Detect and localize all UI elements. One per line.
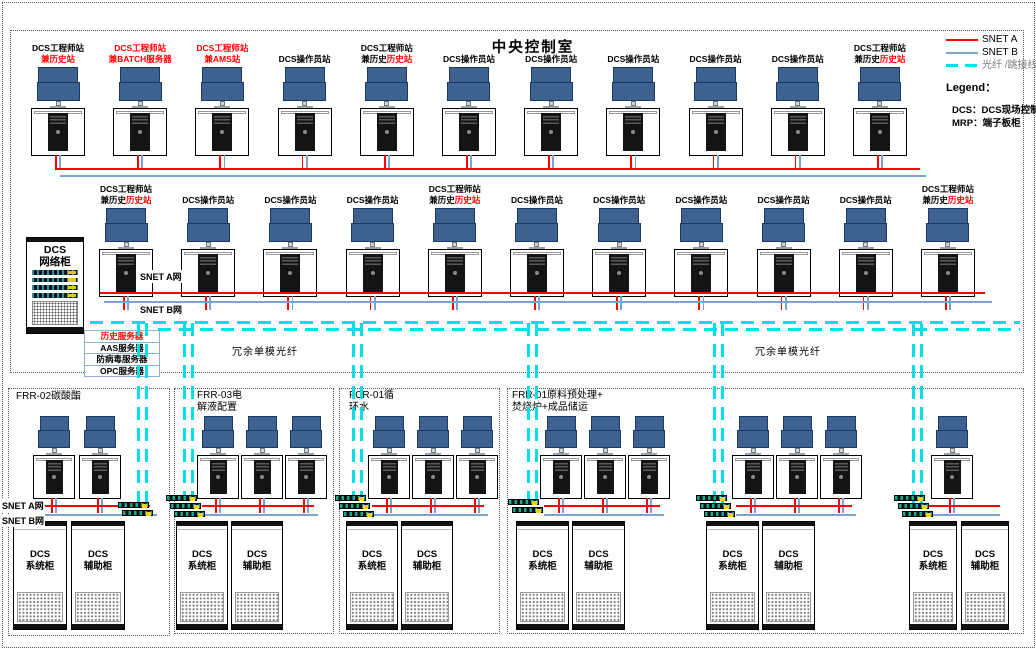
monitor-icon xyxy=(598,208,641,249)
fiber-drop xyxy=(920,323,923,504)
dcs-cabinet: DCS系统柜 xyxy=(706,521,759,630)
tower-front xyxy=(541,113,561,151)
vent-grille xyxy=(405,592,449,622)
monitor-panel xyxy=(515,223,558,242)
computer-tower-icon xyxy=(428,249,482,297)
field-workstation xyxy=(78,416,122,513)
station-label: DCS操作员站 xyxy=(772,41,824,65)
tower-front xyxy=(280,254,300,292)
box-frr01-title: FRR-01原料预处理+焚烧炉+成品储运 xyxy=(512,390,603,414)
frr01-cluster1-workstations xyxy=(539,416,671,513)
station-label-line1: DCS操作员站 xyxy=(593,195,645,206)
cable-pair xyxy=(286,296,294,310)
computer-tower-icon xyxy=(181,249,235,297)
station-label-line1: DCS工程师站 xyxy=(361,43,413,54)
computer-tower-icon xyxy=(31,108,85,156)
frr01-cluster3-cabinets: DCS系统柜DCS辅助柜 xyxy=(909,521,1009,630)
monitor-icon xyxy=(515,208,558,249)
workstation: DCS操作员站 xyxy=(168,182,248,310)
tower-front xyxy=(295,113,315,151)
monitor-panel xyxy=(248,416,277,431)
monitor-icon xyxy=(201,67,244,108)
rack-switch-icon xyxy=(32,293,78,298)
station-label: DCS操作员站 xyxy=(758,182,810,206)
legend-fiber-label: 光纤 /跳接线 xyxy=(982,59,1036,72)
computer-tower-icon xyxy=(33,455,75,499)
dcs-cabinet: DCS系统柜 xyxy=(13,521,67,630)
monitor-panel xyxy=(204,416,233,431)
dcs-cabinet: DCS系统柜 xyxy=(176,521,228,630)
fiber-drop xyxy=(352,323,355,497)
station-label: DCS工程师站兼历史历史站 xyxy=(361,41,413,65)
monitor-icon xyxy=(365,67,408,108)
computer-tower-icon xyxy=(592,249,646,297)
monitor-panel xyxy=(635,416,664,431)
rack-switch-icon xyxy=(32,285,78,290)
switch-stack xyxy=(335,493,374,517)
tower-front xyxy=(198,254,218,292)
cabinet-base xyxy=(27,327,83,333)
monitor-panel xyxy=(926,223,969,242)
field-workstation xyxy=(411,416,455,513)
field-snet-b-label: SNET B网 xyxy=(1,514,45,527)
station-label-line2: 兼历史历史站 xyxy=(361,54,413,65)
tower-front xyxy=(377,113,397,151)
field-workstation xyxy=(819,416,863,513)
workstation: DCS操作员站 xyxy=(593,41,673,169)
monitor-icon xyxy=(545,416,577,455)
monitor-panel xyxy=(681,208,721,224)
monitor-panel xyxy=(353,208,393,224)
monitor-panel xyxy=(270,208,310,224)
network-switch-icon xyxy=(512,507,543,513)
workstation: DCS操作员站 xyxy=(265,41,345,169)
station-label: DCS操作员站 xyxy=(840,182,892,206)
station-label-line1: DCS工程师站 xyxy=(109,43,172,54)
workstation: DCS操作员站 xyxy=(661,182,741,310)
frr03-snet-b-bus xyxy=(202,514,318,516)
server-list-item: 防病毒服务器 xyxy=(85,353,159,365)
computer-tower-icon xyxy=(368,455,410,499)
legend-snet-b: SNET B xyxy=(946,46,1034,59)
station-label-line2: 兼历史历史站 xyxy=(922,195,974,206)
legend-dcs-definition: DCS：DCS现场控制 xyxy=(952,104,1034,117)
station-label-line1: DCS工程师站 xyxy=(854,43,906,54)
cable-pair xyxy=(780,296,788,310)
vent-grille xyxy=(913,592,953,622)
station-label-line1: DCS工程师站 xyxy=(429,184,481,195)
server-list-item: AAS服务器 xyxy=(85,342,159,354)
network-switch-icon xyxy=(704,511,735,517)
monitor-panel xyxy=(449,67,489,83)
station-label-line2: 兼历史历史站 xyxy=(429,195,481,206)
monitor-panel xyxy=(844,223,887,242)
monitor-panel xyxy=(633,430,665,448)
monitor-panel xyxy=(202,67,242,83)
legend-snet-b-label: SNET B xyxy=(982,46,1018,59)
vent-grille xyxy=(576,592,621,622)
computer-tower-icon xyxy=(820,455,862,499)
cabinet-base xyxy=(14,624,66,629)
snet-a-net-label: SNET A网 xyxy=(139,270,183,283)
monitor-panel xyxy=(202,430,234,448)
station-label-line1: DCS操作员站 xyxy=(443,54,495,65)
station-label-line1: DCS操作员站 xyxy=(690,54,742,65)
fiber-bus-line1 xyxy=(90,321,1020,324)
cabinet-base xyxy=(402,624,452,629)
computer-tower-icon xyxy=(689,108,743,156)
field-workstation xyxy=(583,416,627,513)
monitor-panel xyxy=(589,430,621,448)
legend-fiber: 光纤 /跳接线 xyxy=(946,59,1034,72)
dcs-cabinet: DCS系统柜 xyxy=(516,521,569,630)
station-label-line1: DCS操作员站 xyxy=(840,195,892,206)
cabinet-top-bar xyxy=(573,522,624,526)
snet-b-net-label: SNET B网 xyxy=(139,303,183,316)
monitor-panel xyxy=(737,430,769,448)
monitor-panel xyxy=(531,67,571,83)
station-label: DCS操作员站 xyxy=(593,182,645,206)
monitor-panel xyxy=(463,416,492,431)
monitor-icon xyxy=(781,416,813,455)
vent-grille xyxy=(710,592,755,622)
cabinet-label: DCS辅助柜 xyxy=(402,530,452,592)
legend: SNET A SNET B 光纤 /跳接线 Legend： DCS：DCS现场控… xyxy=(946,33,1034,130)
tower-front xyxy=(833,460,850,494)
rack-switch-icon xyxy=(32,270,78,275)
monitor-panel xyxy=(938,416,967,431)
monitor-icon xyxy=(37,67,80,108)
frr01-c2-snet-a-bus xyxy=(736,505,852,507)
cable-pair xyxy=(369,296,377,310)
frr01-cluster2-workstations xyxy=(731,416,863,513)
frr03-cabinets: DCS系统柜DCS辅助柜 xyxy=(176,521,283,630)
monitor-icon xyxy=(84,416,116,455)
computer-tower-icon xyxy=(346,249,400,297)
workstation: DCS操作员站 xyxy=(579,182,659,310)
workstation: DCS工程师站兼历史历史站 xyxy=(840,41,920,169)
station-label-line1: DCS操作员站 xyxy=(511,195,563,206)
field-workstation xyxy=(539,416,583,513)
monitor-icon xyxy=(290,416,322,455)
monitor-panel xyxy=(417,430,449,448)
monitor-panel xyxy=(694,82,737,101)
cabinet-label: DCS辅助柜 xyxy=(232,530,282,592)
monitor-panel xyxy=(762,223,805,242)
computer-tower-icon xyxy=(540,455,582,499)
network-switch-icon xyxy=(335,495,366,501)
box-frr02-title: FRR-02碳酸酯 xyxy=(16,391,81,403)
station-label-line1: DCS工程师站 xyxy=(32,43,84,54)
network-switch-icon xyxy=(700,503,731,509)
frr01-c1-snet-b-bus xyxy=(544,514,664,516)
fiber-drop xyxy=(721,323,724,504)
monitor-panel xyxy=(447,82,490,101)
monitor-panel xyxy=(84,430,116,448)
monitor-icon xyxy=(680,208,723,249)
dcs-cabinet: DCS系统柜 xyxy=(346,521,398,630)
monitor-panel xyxy=(285,67,325,83)
dcs-cabinet: DCS辅助柜 xyxy=(231,521,283,630)
cable-pair xyxy=(301,155,309,169)
computer-tower-icon xyxy=(442,108,496,156)
station-label-line1: DCS操作员站 xyxy=(279,54,331,65)
station-label-line1: DCS操作员站 xyxy=(525,54,577,65)
computer-tower-icon xyxy=(456,455,498,499)
workstation: DCS操作员站 xyxy=(758,41,838,169)
monitor-panel xyxy=(591,416,620,431)
monitor-panel xyxy=(375,416,404,431)
fiber-drop xyxy=(145,323,148,504)
station-label: DCS工程师站兼AMS站 xyxy=(196,41,248,65)
tower-front xyxy=(856,254,876,292)
cable-pair xyxy=(451,296,459,310)
tower-front xyxy=(691,254,711,292)
station-label: DCS操作员站 xyxy=(443,41,495,65)
switch-stack xyxy=(166,493,205,517)
cabinet-label: DCS辅助柜 xyxy=(72,530,124,592)
field-workstation xyxy=(455,416,499,513)
cabinet-label: DCS系统柜 xyxy=(14,530,66,592)
cabinet-top-bar xyxy=(232,522,282,526)
monitor-panel xyxy=(419,416,448,431)
monitor-panel xyxy=(846,208,886,224)
dcs-cabinet: DCS系统柜 xyxy=(909,521,957,630)
cabinet-top-bar xyxy=(27,238,83,242)
station-label: DCS操作员站 xyxy=(607,41,659,65)
fcr01-workstations xyxy=(367,416,499,513)
computer-tower-icon xyxy=(732,455,774,499)
monitor-panel xyxy=(119,82,162,101)
cabinet-top-bar xyxy=(72,522,124,526)
station-label-line1: DCS工程师站 xyxy=(922,184,974,195)
frr02-workstations xyxy=(32,416,122,513)
monitor-panel xyxy=(860,67,900,83)
computer-tower-icon xyxy=(628,455,670,499)
vent-grille xyxy=(32,301,78,325)
legend-snet-a: SNET A xyxy=(946,33,1034,46)
monitor-panel xyxy=(547,416,576,431)
box-fcr01-title: FCR-01循环水 xyxy=(349,390,394,414)
monitor-panel xyxy=(373,430,405,448)
cable-pair xyxy=(533,296,541,310)
computer-tower-icon xyxy=(921,249,975,297)
tower-front xyxy=(298,460,315,494)
station-label-line1: DCS操作员站 xyxy=(182,195,234,206)
field-workstation xyxy=(627,416,671,513)
tower-front xyxy=(609,254,629,292)
box-frr03-title: FRR-03电解液配置 xyxy=(197,390,242,414)
monitor-panel xyxy=(38,67,78,83)
station-label: DCS工程师站兼历史历史站 xyxy=(854,41,906,65)
tower-front xyxy=(116,254,136,292)
fiber-drop xyxy=(912,323,915,504)
network-switch-icon xyxy=(894,495,925,501)
station-label: DCS操作员站 xyxy=(182,182,234,206)
vent-grille xyxy=(520,592,565,622)
tower-front xyxy=(623,113,643,151)
tower-front xyxy=(469,460,486,494)
cabinet-base xyxy=(763,624,814,629)
tower-front xyxy=(381,460,398,494)
cabinet-label: DCS辅助柜 xyxy=(962,530,1008,592)
monitor-icon xyxy=(447,67,490,108)
monitor-icon xyxy=(351,208,394,249)
server-list-item: OPC服务器 xyxy=(85,365,159,377)
fiber-drop xyxy=(527,323,530,502)
station-label-line1: DCS操作员站 xyxy=(772,54,824,65)
fiber-label-right: 冗余单模光纤 xyxy=(755,343,821,358)
dcs-cabinet: DCS辅助柜 xyxy=(71,521,125,630)
cabinet-label: DCS系统柜 xyxy=(707,530,758,592)
computer-tower-icon xyxy=(195,108,249,156)
frr03-workstations xyxy=(196,416,328,513)
tower-front xyxy=(774,254,794,292)
frr01-cluster1-cabinets: DCS系统柜DCS辅助柜 xyxy=(516,521,625,630)
computer-tower-icon xyxy=(931,455,973,499)
station-label-line2: 兼历史历史站 xyxy=(100,195,152,206)
monitor-panel xyxy=(825,430,857,448)
cabinet-base xyxy=(573,624,624,629)
vent-grille xyxy=(235,592,279,622)
station-label: DCS操作员站 xyxy=(511,182,563,206)
computer-tower-icon xyxy=(79,455,121,499)
computer-tower-icon xyxy=(674,249,728,297)
frr02-cabinets: DCS系统柜DCS辅助柜 xyxy=(13,521,125,630)
tower-front xyxy=(597,460,614,494)
monitor-panel xyxy=(367,67,407,83)
computer-tower-icon xyxy=(510,249,564,297)
fiber-drop xyxy=(535,323,538,502)
tower-front xyxy=(553,460,570,494)
station-label: DCS工程师站兼历史历史站 xyxy=(922,182,974,206)
legend-snet-a-label: SNET A xyxy=(982,33,1017,46)
field-workstation xyxy=(240,416,284,513)
monitor-panel xyxy=(928,208,968,224)
tower-front xyxy=(641,460,658,494)
monitor-icon xyxy=(461,416,493,455)
monitor-icon xyxy=(119,67,162,108)
cable-pair xyxy=(629,155,637,169)
cabinet-base xyxy=(910,624,956,629)
cabinet-top-bar xyxy=(177,522,227,526)
dcs-network-cabinet: DCS网络柜 xyxy=(26,237,84,334)
cabinet-label: DCS系统柜 xyxy=(910,530,956,592)
cable-pair xyxy=(697,296,705,310)
monitor-panel xyxy=(696,67,736,83)
workstation: DCS工程师站兼历史站 xyxy=(18,41,98,169)
vent-grille xyxy=(350,592,394,622)
monitor-panel xyxy=(858,82,901,101)
cable-pair xyxy=(712,155,720,169)
station-label-line1: DCS操作员站 xyxy=(347,195,399,206)
monitor-panel xyxy=(105,223,148,242)
computer-tower-icon xyxy=(771,108,825,156)
monitor-icon xyxy=(858,67,901,108)
monitor-panel xyxy=(776,82,819,101)
monitor-panel xyxy=(187,223,230,242)
cable-pair xyxy=(218,155,226,169)
cabinet-base xyxy=(347,624,397,629)
cabinet-base xyxy=(517,624,568,629)
monitor-icon xyxy=(187,208,230,249)
cable-pair xyxy=(794,155,802,169)
tower-front xyxy=(788,113,808,151)
tower-front xyxy=(46,460,63,494)
monitor-panel xyxy=(106,208,146,224)
monitor-icon xyxy=(38,416,70,455)
station-label: DCS操作员站 xyxy=(264,182,316,206)
cabinet-top-bar xyxy=(962,522,1008,526)
station-label: DCS工程师站兼BATCH服务器 xyxy=(109,41,172,65)
cabinet-label: DCS系统柜 xyxy=(177,530,227,592)
monitor-panel xyxy=(351,223,394,242)
workstation: DCS工程师站兼历史历史站 xyxy=(908,182,988,310)
monitor-icon xyxy=(202,416,234,455)
station-label-line2: 兼历史历史站 xyxy=(854,54,906,65)
monitor-icon xyxy=(762,208,805,249)
cable-pair xyxy=(54,155,62,169)
monitor-icon xyxy=(530,67,573,108)
computer-tower-icon xyxy=(839,249,893,297)
server-list: 历史服务器AAS服务器防病毒服务器OPC服务器 xyxy=(84,330,160,377)
workstation: DCS工程师站兼AMS站 xyxy=(182,41,262,169)
fcr01-cabinets: DCS系统柜DCS辅助柜 xyxy=(346,521,453,630)
monitor-icon xyxy=(246,416,278,455)
fcr01-snet-b-bus xyxy=(372,514,488,516)
station-label-line1: DCS工程师站 xyxy=(100,184,152,195)
fiber-line-icon xyxy=(946,64,978,67)
monitor-panel xyxy=(739,416,768,431)
station-label: DCS操作员站 xyxy=(675,182,727,206)
network-switch-icon xyxy=(166,495,197,501)
tower-front xyxy=(445,254,465,292)
monitor-panel xyxy=(461,430,493,448)
monitor-icon xyxy=(417,416,449,455)
monitor-panel xyxy=(283,82,326,101)
cabinet-base xyxy=(707,624,758,629)
network-switch-icon xyxy=(508,499,539,505)
switch-stack xyxy=(894,493,933,517)
cable-pair xyxy=(204,296,212,310)
frr03-snet-a-bus xyxy=(202,505,314,507)
monitor-icon xyxy=(825,416,857,455)
network-cabinet-title: DCS网络柜 xyxy=(27,244,83,268)
tower-front xyxy=(870,113,890,151)
network-switch-icon xyxy=(339,503,370,509)
workstation: DCS操作员站 xyxy=(429,41,509,169)
cabinet-label: DCS辅助柜 xyxy=(763,530,814,592)
cable-pair xyxy=(862,296,870,310)
rack-switch-icon xyxy=(32,278,78,283)
cabinet-label: DCS辅助柜 xyxy=(573,530,624,592)
computer-tower-icon xyxy=(113,108,167,156)
vent-grille xyxy=(17,592,63,622)
tower-front xyxy=(363,254,383,292)
cabinet-top-bar xyxy=(763,522,814,526)
frr01-cluster3-workstations xyxy=(930,416,974,513)
tower-front xyxy=(938,254,958,292)
network-switch-icon xyxy=(343,511,374,517)
workstation: DCS操作员站 xyxy=(744,182,824,310)
monitor-icon xyxy=(776,67,819,108)
monitor-icon xyxy=(936,416,968,455)
tower-front xyxy=(745,460,762,494)
fiber-drop xyxy=(713,323,716,504)
snet-b-line-icon xyxy=(946,52,978,54)
network-switch-icon xyxy=(696,495,727,501)
vent-grille xyxy=(75,592,121,622)
